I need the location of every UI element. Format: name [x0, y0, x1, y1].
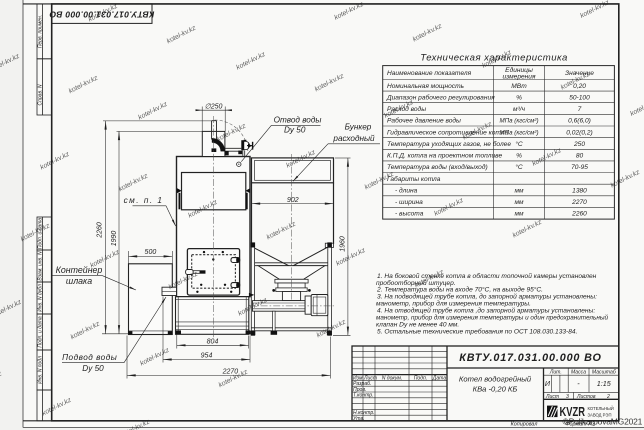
svg-text:Отвод воды: Отвод воды [274, 116, 322, 125]
svg-text:1:15: 1:15 [597, 379, 612, 388]
svg-text:расходный: расходный [332, 134, 375, 143]
svg-text:2260: 2260 [97, 222, 104, 239]
svg-text:°С: °С [515, 140, 523, 148]
svg-text:2260: 2260 [571, 211, 587, 218]
svg-text:%: % [516, 94, 522, 101]
svg-text:мм: мм [514, 199, 524, 206]
svg-text:манометр, прибор для измерения: манометр, прибор для измерения температу… [376, 314, 608, 322]
svg-text:Инв. N подл: Инв. N подл [38, 356, 44, 384]
svg-text:Подп. и дата: Подп. и дата [38, 316, 44, 348]
svg-text:Габариты котла: Габариты котла [387, 175, 441, 183]
svg-text:Dу 50: Dу 50 [284, 126, 306, 135]
svg-text:клапан Dу не менее 40 мм.: клапан Dу не менее 40 мм. [376, 322, 459, 329]
svg-text:Диапазон рабочего регулировани: Диапазон рабочего регулирования [386, 93, 495, 101]
svg-text:Наименование показателя: Наименование показателя [387, 70, 472, 77]
svg-text:%: % [516, 153, 522, 160]
svg-text:∅250: ∅250 [205, 103, 223, 110]
svg-text:Т.контр.: Т.контр. [353, 393, 374, 399]
svg-text:3. На подводящей трубе котла,: 3. На подводящей трубе котла, до запорно… [377, 293, 597, 301]
svg-text:К.П.Д. котла на проектном топл: К.П.Д. котла на проектном топливе [387, 153, 502, 160]
svg-text:Гидравлическое сопротивление к: Гидравлическое сопротивление котла [387, 128, 508, 136]
svg-text:КВа -0,20 КБ: КВа -0,20 КБ [473, 385, 518, 394]
svg-text:°С: °С [515, 163, 523, 171]
svg-text:2. Температура воды на входе: 2. Температура воды на входе 70°С, на вы… [376, 286, 543, 294]
svg-text:Dу 50: Dу 50 [82, 364, 104, 373]
svg-text:3: 3 [566, 394, 569, 400]
svg-text:Температура воды (вход/выход): Температура воды (вход/выход) [387, 163, 488, 171]
svg-text:МПа (кгс/см²): МПа (кгс/см²) [499, 129, 538, 136]
svg-text:N докум.: N докум. [382, 375, 403, 381]
svg-text:МВт: МВт [511, 83, 527, 90]
svg-text:см. п. 1: см. п. 1 [124, 196, 164, 205]
svg-text:Рабочее давление воды: Рабочее давление воды [387, 117, 461, 125]
svg-text:Подвод воды: Подвод воды [62, 353, 117, 362]
svg-text:- длина: - длина [395, 187, 418, 195]
svg-text:50-100: 50-100 [569, 94, 590, 101]
svg-text:Листов: Листов [576, 394, 596, 400]
svg-text:Справ. N: Справ. N [38, 84, 44, 105]
svg-text:Масса: Масса [571, 369, 586, 375]
svg-text:1380: 1380 [572, 188, 587, 195]
svg-text:КВТУ.017.031.00.000 ВО: КВТУ.017.031.00.000 ВО [459, 352, 602, 364]
svg-text:2270: 2270 [571, 199, 587, 206]
svg-text:И: И [545, 379, 551, 388]
svg-text:м³/ч: м³/ч [513, 106, 526, 113]
svg-text:Масштаб: Масштаб [592, 369, 617, 375]
svg-text:Утв.: Утв. [353, 416, 365, 422]
svg-text:КОТЕЛЬНЫЙ: КОТЕЛЬНЫЙ [588, 406, 614, 411]
svg-text:1. На боковой стенке котла в: 1. На боковой стенке котла в области топ… [377, 272, 597, 280]
svg-text:Взам. инв. N: Взам. инв. N [38, 251, 44, 281]
svg-text:Подп.: Подп. [414, 375, 428, 381]
svg-text:7: 7 [578, 106, 582, 113]
svg-text:804: 804 [207, 338, 219, 345]
svg-text:902: 902 [287, 197, 299, 204]
svg-text:Лит.: Лит. [549, 369, 562, 375]
svg-text:Копировал: Копировал [511, 422, 538, 428]
svg-text:мм: мм [514, 188, 524, 195]
svg-text:мм: мм [514, 211, 524, 218]
svg-text:Котел водогрейный: Котел водогрейный [459, 375, 532, 384]
svg-text:1960: 1960 [340, 236, 347, 252]
svg-text:шлака: шлака [66, 276, 92, 286]
svg-text:954: 954 [201, 353, 213, 360]
svg-text:4. На отводящей трубе котла ,: 4. На отводящей трубе котла ,до запорной… [377, 307, 595, 315]
svg-text:70-95: 70-95 [571, 164, 588, 171]
svg-text:Перв. примен.: Перв. примен. [38, 15, 44, 48]
svg-text:0,6(6,0): 0,6(6,0) [568, 118, 591, 125]
svg-text:Лист: Лист [545, 394, 559, 400]
svg-text:2: 2 [606, 394, 610, 400]
svg-text:измерения: измерения [503, 74, 536, 81]
svg-text:80: 80 [576, 153, 584, 160]
svg-text:Инв. N дубл: Инв. N дубл [38, 284, 44, 312]
svg-text:- ширина: - ширина [395, 199, 423, 206]
svg-text:1990: 1990 [111, 231, 118, 247]
svg-text:Номинальная мощность: Номинальная мощность [387, 83, 465, 90]
svg-text:Температура уходящих газов, не: Температура уходящих газов, не более [387, 140, 511, 148]
svg-text:Дата: Дата [432, 375, 447, 381]
svg-text:Бункер: Бункер [345, 123, 372, 132]
svg-text:- высота: - высота [395, 211, 424, 218]
svg-text:5. Остальные технические треб: 5. Остальные технические требования по О… [377, 328, 578, 336]
svg-text:500: 500 [145, 249, 157, 256]
svg-text:манометр, прибор для измерения: манометр, прибор для измерения температу… [376, 300, 531, 308]
svg-text:250: 250 [573, 141, 585, 148]
svg-text:МПа (кгс/см²): МПа (кгс/см²) [499, 118, 538, 125]
svg-text:©PolikarpovaMG2021: ©PolikarpovaMG2021 [563, 416, 643, 426]
svg-text:0,02(0,2): 0,02(0,2) [566, 129, 592, 136]
